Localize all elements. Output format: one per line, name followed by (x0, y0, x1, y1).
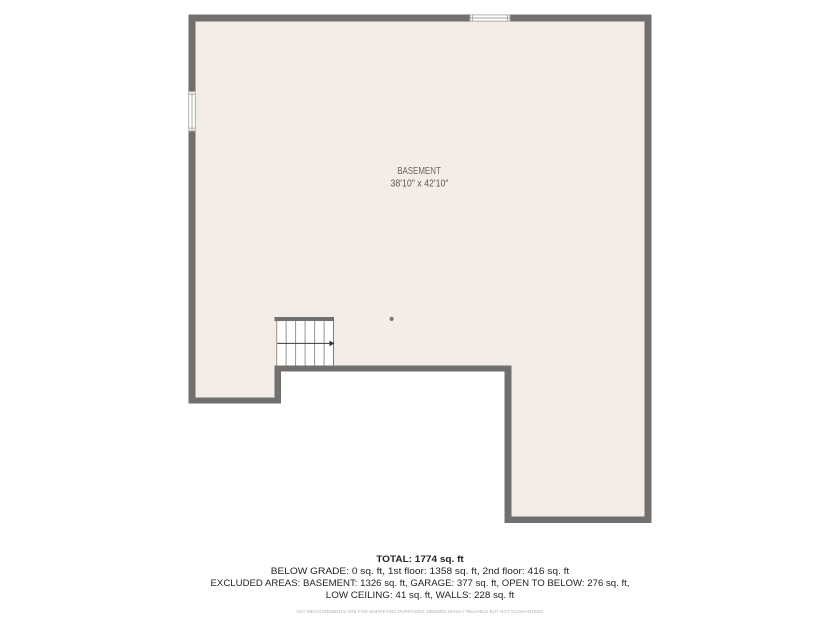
svg-text:38'10" x 42'10": 38'10" x 42'10" (391, 178, 449, 189)
svg-text:TOTAL: 1774 sq. ft: TOTAL: 1774 sq. ft (376, 554, 464, 565)
svg-text:EXCLUDED AREAS: BASEMENT: 1326: EXCLUDED AREAS: BASEMENT: 1326 sq. ft, G… (211, 578, 630, 589)
svg-text:BELOW GRADE: 0 sq. ft, 1st flo: BELOW GRADE: 0 sq. ft, 1st floor: 1358 s… (271, 566, 570, 577)
svg-text:ANY MEASUREMENTS ARE FOR MARKE: ANY MEASUREMENTS ARE FOR MARKETING PURPO… (296, 609, 544, 615)
svg-text:LOW CEILING: 41 sq. ft, WALLS:: LOW CEILING: 41 sq. ft, WALLS: 228 sq. f… (326, 590, 515, 601)
svg-text:BASEMENT: BASEMENT (397, 166, 441, 177)
